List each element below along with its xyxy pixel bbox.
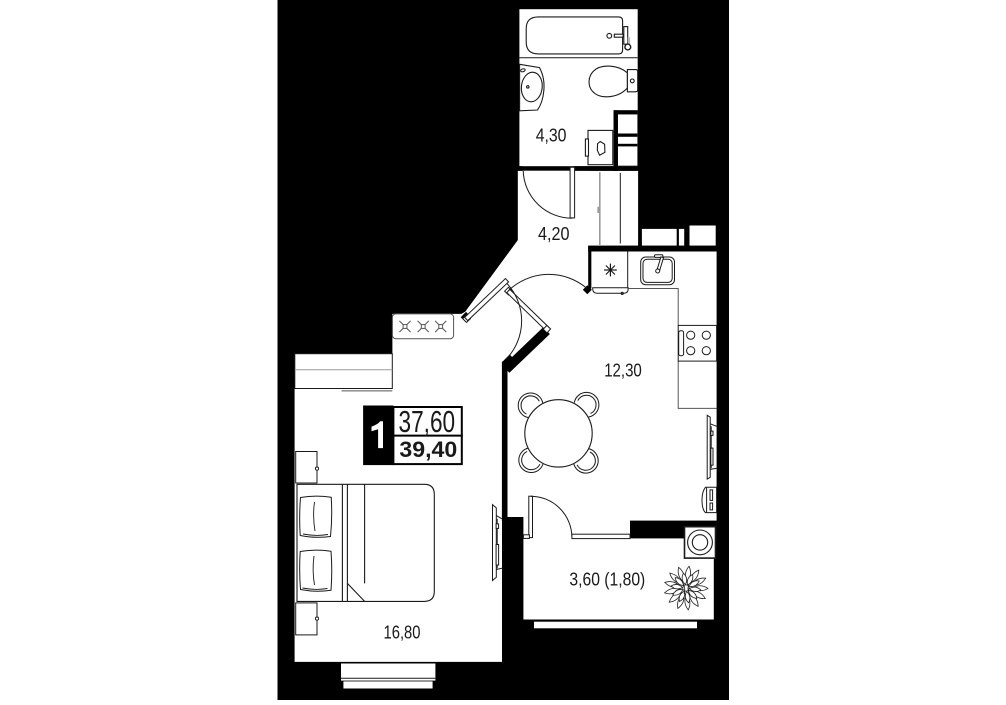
svg-text:12,30: 12,30	[604, 359, 642, 380]
svg-text:16,80: 16,80	[384, 622, 421, 643]
svg-text:37,60: 37,60	[399, 405, 456, 439]
svg-text:3,60 (1,80): 3,60 (1,80)	[569, 569, 645, 590]
svg-text:4,20: 4,20	[538, 223, 570, 244]
svg-text:4,30: 4,30	[536, 125, 567, 146]
svg-text:39,40: 39,40	[399, 437, 457, 462]
